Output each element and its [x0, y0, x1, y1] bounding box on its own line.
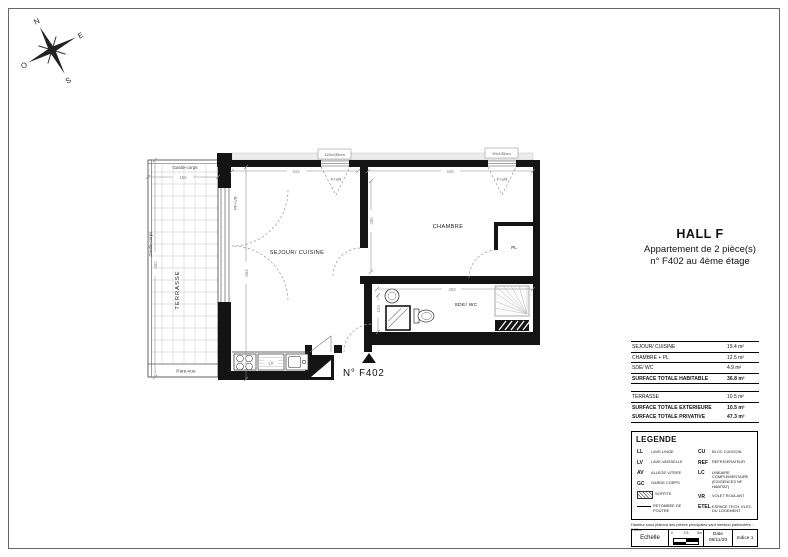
table-row-total-privative: SURFACE TOTALE PRIVATIVE 47.3 m²: [631, 412, 759, 423]
legend-item: REF REFRIGERATEUR: [698, 460, 756, 466]
wall-pl-left: [494, 226, 498, 250]
soffite-swatch-icon: [637, 491, 653, 499]
dimension-labels: 344 446 186 564 280 582 369 133: [153, 169, 456, 313]
legend-abbr: VR: [698, 494, 712, 500]
door-swings: [232, 167, 516, 352]
dim-terrasse-height: 582: [153, 261, 158, 269]
legend-abbr: LL: [637, 449, 651, 455]
table-gap: [631, 384, 759, 392]
scale-segment: [686, 542, 698, 545]
row-label: TERRASSE: [632, 394, 659, 400]
entrance-marker: N° F402: [343, 353, 385, 379]
wall-left-lower: [218, 302, 231, 380]
legend-label: ESPACE TECH. ELEC. DU LOGEMENT: [712, 504, 756, 514]
etel-door-swing: [310, 336, 331, 352]
wall-bottom-sde: [372, 332, 540, 345]
table-row: SDE/ WC 4.9 m²: [631, 363, 759, 374]
terrace-door-swing-upper: [232, 190, 288, 246]
legend-abbr: LV: [637, 460, 651, 466]
terrasse-area: Garde-corps Garde-corps TERRASSE Pare-vu…: [148, 160, 218, 377]
scale-label: Echelle: [632, 530, 668, 546]
legend-abbr: AV: [637, 470, 651, 476]
legend-item: GC GARDE CORPS: [637, 481, 694, 487]
row-label: SURFACE TOTALE HABITABLE: [632, 376, 708, 382]
wall-top-mid: [350, 160, 368, 167]
row-label: SURFACE TOTALE EXTERIEURE: [632, 405, 712, 411]
title-block: HALL F Appartement de 2 pièce(s) n° F402…: [612, 227, 788, 267]
index-cell: Indice 1: [733, 530, 757, 546]
legend-label: REFRIGERATEUR: [712, 460, 745, 465]
table-row: SEJOUR/ CUISINE 19.4 m²: [631, 342, 759, 353]
compass-north-label: N: [32, 16, 41, 26]
window1-label: F+VR: [331, 177, 342, 182]
entrance-arrow-icon: [362, 353, 376, 363]
wall-chambre-sde: [360, 276, 533, 284]
dishwasher-label: LV: [268, 361, 273, 366]
sink-basin-icon: [289, 357, 301, 368]
legend-label: RETOMBEE DE POUTRE: [653, 504, 694, 514]
terrasse-room-label: TERRASSE: [175, 270, 181, 309]
window1-size-label: 120x135cm: [324, 152, 345, 157]
burner-icon: [246, 355, 253, 362]
wall-top-sejour: [218, 160, 320, 167]
legend-label: SOFFITE: [655, 491, 671, 496]
legend-title: LEGENDE: [632, 432, 757, 444]
dim-sejour-width: 344: [292, 169, 300, 174]
apartment-number: n° F402 au 4ème étage: [612, 256, 788, 267]
floor-plan-sheet: N E S O Garde-corps Garde-corps TERRASSE…: [0, 0, 788, 557]
terrace-outline: [148, 160, 218, 377]
row-value: 4.9 m²: [727, 365, 758, 371]
legend-abbr: ETEL: [698, 504, 712, 510]
scale-bar-graphic: [673, 538, 699, 545]
wall-sejour-sde: [364, 284, 372, 352]
table-row-terrasse: TERRASSE 10.5 m²: [631, 392, 759, 403]
scale-segment: [674, 542, 686, 545]
bathroom-fixtures: [385, 286, 530, 331]
row-label: SDE/ WC: [632, 365, 653, 371]
surface-table: SEJOUR/ CUISINE 19.4 m² CHAMBRE + PL 12.…: [631, 341, 759, 423]
window1-glazing: [321, 161, 349, 166]
legend-item: CU BLOC CUISSON: [698, 449, 756, 455]
table-row-total-exterieure: SURFACE TOTALE EXTERIEURE 10.5 m²: [631, 403, 759, 413]
date-cell: Date 09/11/20: [704, 530, 733, 546]
legend-label: VOLET ROULANT: [712, 494, 744, 499]
legend-abbr: REF: [698, 460, 712, 466]
table-row: CHAMBRE + PL 12.5 m²: [631, 353, 759, 364]
chambre-room-label: CHAMBRE: [433, 224, 464, 230]
etel-closet: [308, 336, 334, 380]
dim-sde-width: 369: [448, 287, 456, 292]
dim-chambre-width: 446: [446, 169, 454, 174]
window2-label: F+VR: [497, 177, 508, 182]
burner-icon: [237, 355, 244, 362]
wall-pl-top: [494, 222, 533, 226]
wall-left-upper: [218, 160, 231, 188]
row-value: 36.8 m²: [727, 376, 758, 382]
chambre-door-swing: [333, 248, 361, 276]
beam-line-swatch-icon: [637, 506, 651, 507]
legend-item: VR VOLET ROULANT: [698, 494, 756, 500]
walls: [217, 153, 540, 380]
hall-title: HALL F: [612, 227, 788, 241]
garde-corps-left-label: Garde-corps: [148, 231, 153, 257]
row-label: CHAMBRE + PL: [632, 355, 669, 361]
row-label: SURFACE TOTALE PRIVATIVE: [632, 414, 705, 420]
scale-tick-2: 5m: [697, 531, 702, 535]
pl-room-label: PL: [511, 245, 517, 250]
legend-label: LINEAIRE COMPLEMENTAIRE (EXIGENCES NF HA…: [712, 470, 756, 489]
wall-sejour-chambre: [360, 167, 368, 248]
legend-label: ALLEGE VITREE: [651, 470, 681, 475]
dim-sejour-height: 564: [244, 269, 249, 277]
dim-sde-height: 133: [376, 305, 381, 313]
pf-jamb-top: [218, 184, 231, 188]
dim-terrasse-width: 186: [179, 175, 187, 180]
legend-label: LAVE-VAISSELLE: [651, 460, 683, 465]
legend-item-retombee: RETOMBEE DE POUTRE: [637, 504, 694, 514]
window2-jamb-right: [516, 160, 519, 167]
window2-glazing: [488, 161, 516, 166]
wall-bottom-sejour: [218, 371, 312, 380]
legend-abbr: CU: [698, 449, 712, 455]
compass-south-label: S: [64, 75, 73, 85]
legend-item: LL LAVE-LINGE: [637, 449, 694, 455]
unit-number-label: N° F402: [343, 368, 385, 379]
window1-jamb-right: [349, 160, 352, 167]
legend-item-soffite: SOFFITE: [637, 491, 694, 499]
wall-right: [533, 160, 540, 345]
table-row-total-habitable: SURFACE TOTALE HABITABLE 36.8 m²: [631, 374, 759, 385]
date-value: 09/11/20: [709, 538, 727, 544]
apartment-type: Appartement de 2 pièce(s): [612, 244, 788, 255]
scale-bar: 0 2.5 5m: [668, 530, 704, 546]
compass-east-label: E: [76, 30, 85, 40]
pf-jamb-bottom: [218, 302, 231, 306]
scale-date-bar: Echelle 0 2.5 5m Date 09/11/20 Indice 1: [631, 529, 758, 547]
scale-tick-1: 2.5: [684, 531, 689, 535]
burner-icon: [246, 363, 253, 370]
scale-tick-0: 0: [671, 531, 673, 535]
legend-label: LAVE-LINGE: [651, 449, 674, 454]
row-value: 47.3 m²: [727, 414, 758, 420]
row-value: 10.5 m²: [727, 394, 758, 400]
terrace-tile-grid: [151, 164, 218, 364]
compass-rose-icon: N E S O: [4, 1, 101, 101]
window2-jamb-left: [485, 160, 488, 167]
sde-room-label: SDE/ WC: [454, 302, 477, 308]
pare-vue-label: Pare-vue: [176, 369, 196, 375]
row-label: SEJOUR/ CUISINE: [632, 344, 675, 350]
pl-door-swing: [469, 250, 497, 278]
legend-left-column: LL LAVE-LINGE LV LAVE-VAISSELLE AV ALLEG…: [637, 449, 694, 518]
legend-item: ETEL ESPACE TECH. ELEC. DU LOGEMENT: [698, 504, 756, 514]
washbasin-icon: [385, 289, 399, 303]
window2-size-label: 90x135cm: [492, 151, 511, 156]
row-value: 12.5 m²: [727, 355, 758, 361]
window1-jamb-left: [318, 160, 321, 167]
legend-label: BLOC CUISSON: [712, 449, 741, 454]
legend-label: GARDE CORPS: [651, 481, 680, 486]
row-value: 10.5 m²: [727, 405, 758, 411]
garde-corps-top-label: Garde-corps: [172, 165, 198, 170]
legend-abbr: LC: [698, 470, 712, 476]
door-window-label: PF+VR: [233, 196, 238, 210]
dim-chambre-height: 280: [369, 217, 374, 225]
compass-west-label: O: [19, 60, 29, 71]
sejour-room-label: SEJOUR/ CUISINE: [270, 250, 325, 256]
row-value: 19.4 m²: [727, 344, 758, 350]
burner-icon: [237, 363, 244, 370]
legend-item: AV ALLEGE VITREE: [637, 470, 694, 476]
faucet-icon: [302, 360, 305, 363]
legend-right-column: CU BLOC CUISSON REF REFRIGERATEUR LC LIN…: [698, 449, 756, 519]
wall-entry-jamb-left: [334, 345, 342, 353]
legend-abbr: GC: [637, 481, 651, 487]
legend-box: LEGENDE LL LAVE-LINGE LV LAVE-VAISSELLE …: [631, 431, 758, 520]
legend-item: LC LINEAIRE COMPLEMENTAIRE (EXIGENCES NF…: [698, 470, 756, 489]
door-window-glazing: [221, 188, 229, 302]
legend-item: LV LAVE-VAISSELLE: [637, 460, 694, 466]
wall-top-chambre: [368, 160, 487, 167]
